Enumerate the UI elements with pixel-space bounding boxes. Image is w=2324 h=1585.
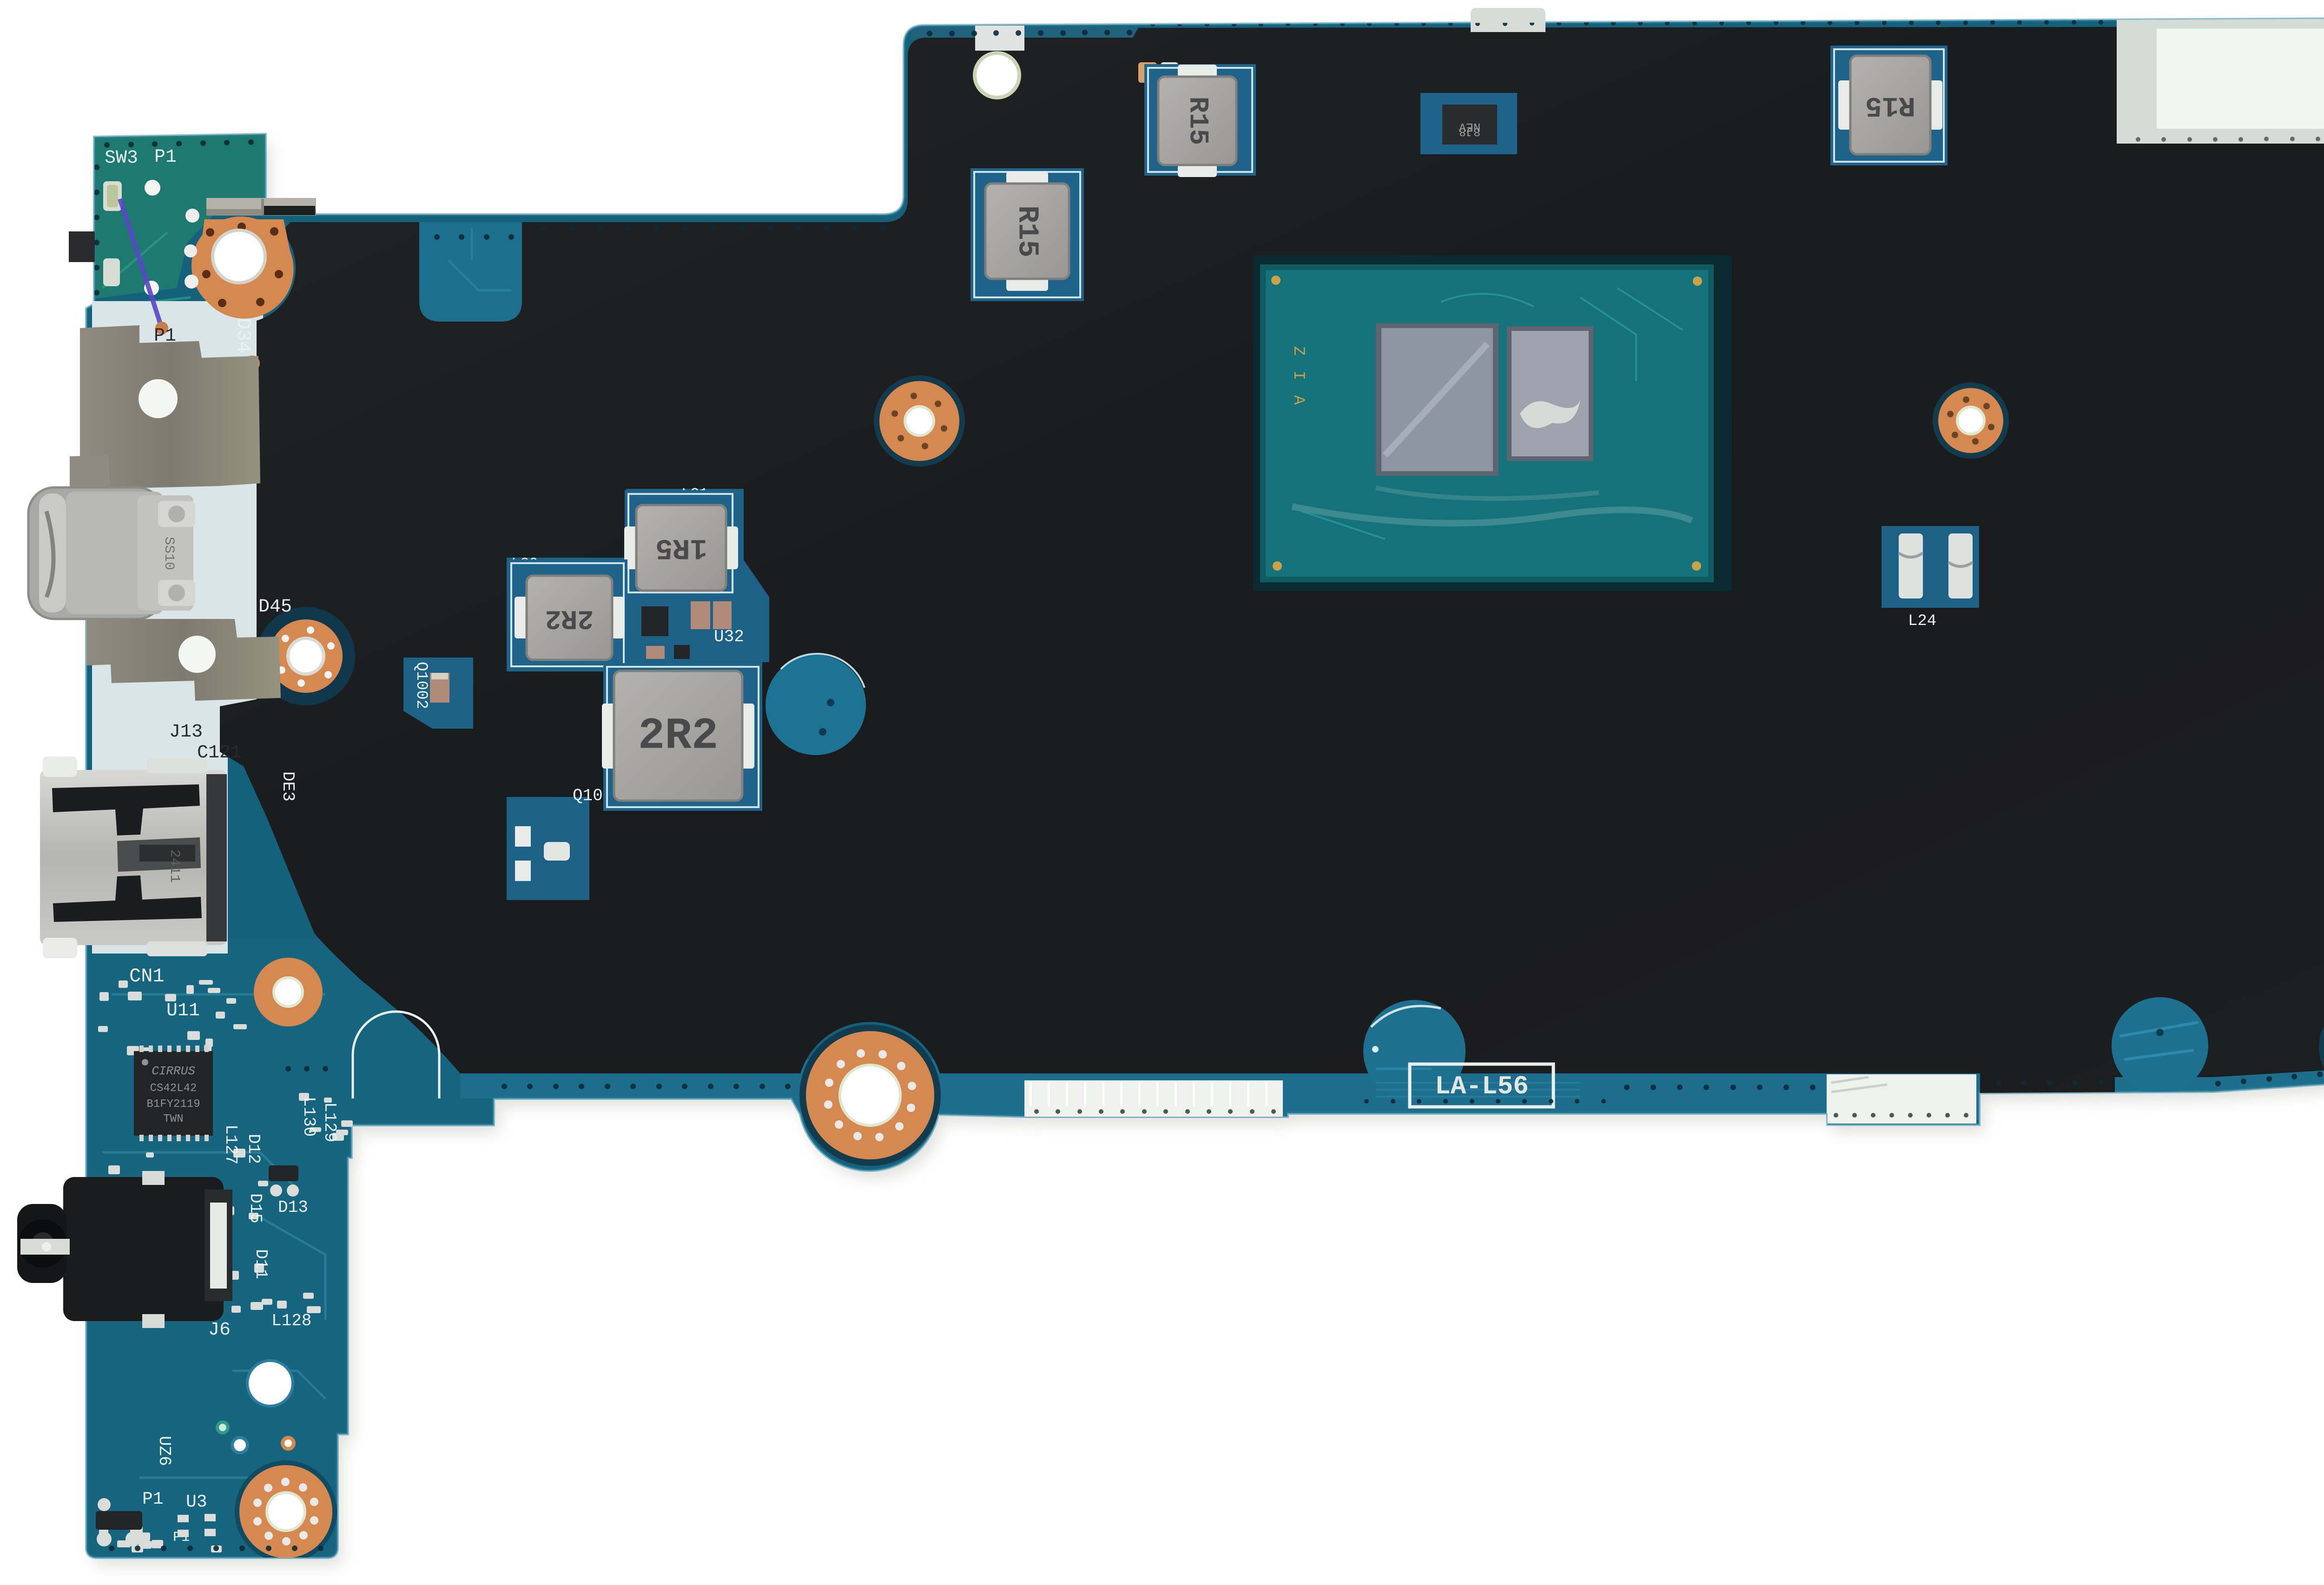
svg-text:R15: R15 xyxy=(1011,205,1044,257)
svg-text:Z I A: Z I A xyxy=(1289,346,1307,408)
svg-text:P1: P1 xyxy=(154,147,177,168)
svg-text:SW3: SW3 xyxy=(105,148,138,169)
svg-text:D34: D34 xyxy=(232,318,254,353)
svg-text:DE3: DE3 xyxy=(278,771,297,802)
svg-text:L127: L127 xyxy=(221,1125,240,1164)
svg-text:R15: R15 xyxy=(1865,89,1915,121)
svg-text:L130: L130 xyxy=(299,1097,318,1137)
svg-text:CN1: CN1 xyxy=(129,965,165,987)
svg-text:U32: U32 xyxy=(714,627,744,646)
svg-text:SS10: SS10 xyxy=(161,537,177,570)
svg-text:Q1002: Q1002 xyxy=(412,662,430,709)
svg-text:U11: U11 xyxy=(166,1000,200,1021)
svg-text:B1FY2119: B1FY2119 xyxy=(146,1098,200,1111)
svg-text:CIRRUS: CIRRUS xyxy=(152,1064,195,1078)
svg-text:TWN: TWN xyxy=(163,1113,183,1125)
svg-text:L129: L129 xyxy=(320,1102,339,1142)
svg-text:J13: J13 xyxy=(169,722,203,743)
svg-text:D45: D45 xyxy=(258,597,292,618)
svg-text:U3: U3 xyxy=(186,1492,207,1512)
svg-text:J6: J6 xyxy=(208,1320,231,1341)
svg-text:Q10: Q10 xyxy=(573,786,603,805)
svg-text:8J8: 8J8 xyxy=(1459,125,1481,138)
svg-text:D13: D13 xyxy=(278,1198,308,1217)
svg-text:L24: L24 xyxy=(1908,612,1936,630)
svg-text:D12: D12 xyxy=(244,1134,263,1164)
svg-text:L128: L128 xyxy=(271,1311,311,1330)
svg-text:R15: R15 xyxy=(1182,97,1213,145)
svg-text:2411: 2411 xyxy=(166,849,182,883)
svg-text:LA-L56: LA-L56 xyxy=(1435,1072,1529,1101)
svg-text:1R5: 1R5 xyxy=(655,532,707,565)
svg-text:P1: P1 xyxy=(142,1489,164,1509)
svg-text:D11: D11 xyxy=(251,1249,271,1279)
svg-text:UZ6: UZ6 xyxy=(155,1436,174,1466)
svg-text:2R2: 2R2 xyxy=(545,603,594,633)
svg-text:2R2: 2R2 xyxy=(638,711,719,762)
svg-text:CS42L42: CS42L42 xyxy=(150,1082,197,1095)
svg-text:D15: D15 xyxy=(246,1193,265,1223)
